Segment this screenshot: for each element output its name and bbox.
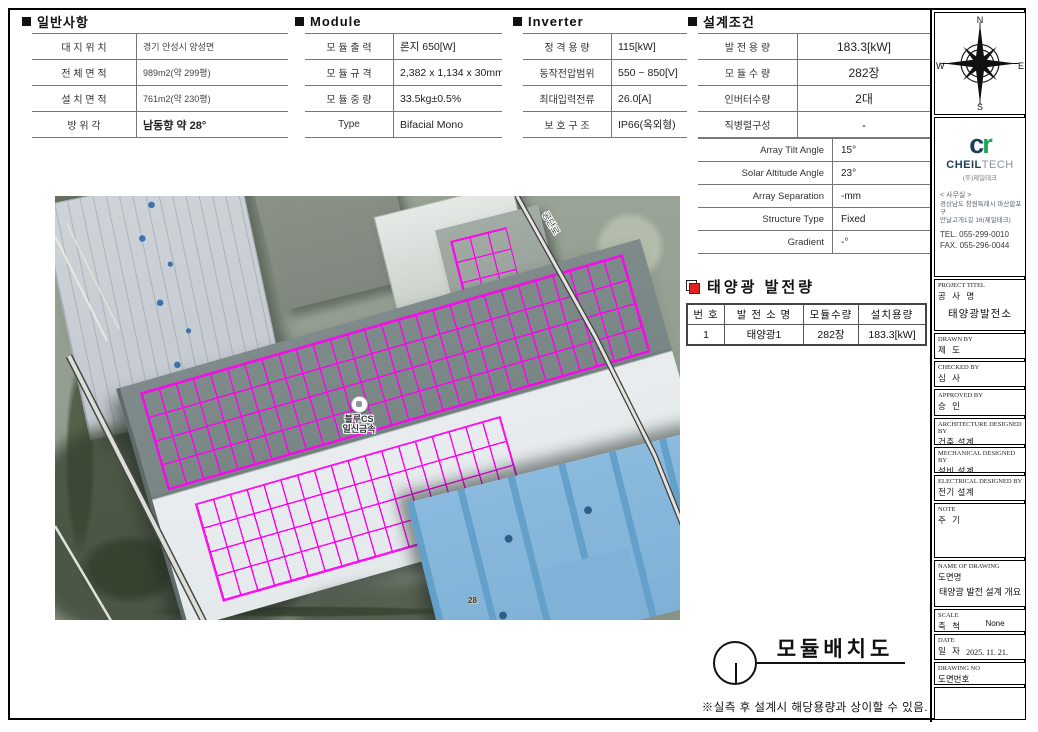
- table-row: Solar Altitude Angle23°: [698, 162, 930, 185]
- row-label: 인버터수량: [698, 86, 798, 112]
- titleblock-drawing-name: NAME OF DRAWING 도면명 태양광 발전 설계 개요: [934, 560, 1026, 607]
- block-value: 2025. 11. 21.: [949, 648, 1025, 657]
- row-value: 23°: [833, 162, 931, 185]
- map-place-label-line1: 블루CS: [313, 414, 405, 424]
- row-value: -mm: [833, 185, 931, 208]
- block-label-en: NOTE: [935, 504, 1025, 513]
- gen-cell-plant: 태양광1: [725, 325, 804, 346]
- row-value: -: [798, 112, 931, 138]
- row-value: 33.5kg±0.5%: [394, 86, 503, 112]
- block-label-en: MECHANICAL DESIGNED BY: [935, 448, 1025, 464]
- block-value: 태양광발전소: [935, 306, 1025, 321]
- row-label: Solar Altitude Angle: [698, 162, 833, 185]
- titleblock-drawing-no: DRAWING NO 도면번호: [934, 662, 1026, 685]
- section-module-title: Module: [310, 14, 362, 29]
- cheiltech-logo-icon: cr: [935, 132, 1025, 156]
- titleblock-date: DATE 일 자 2025. 11. 21.: [934, 634, 1026, 660]
- section-inverter-header: Inverter: [513, 12, 685, 30]
- square-bullet-icon: [688, 17, 697, 26]
- row-value: 경기 안성시 양성면: [137, 34, 289, 60]
- section-generation: 태양광 발전량 번 호 발 전 소 명 모듈수량 설치용량 1 태양광1 282…: [686, 276, 928, 346]
- row-value: Bifacial Mono: [394, 112, 503, 138]
- gen-cell-capacity: 183.3[kW]: [859, 325, 927, 346]
- module-table: 모 듈 출 력론지 650[W] 모 듈 규 격2,382 x 1,134 x …: [305, 33, 502, 138]
- gen-header-capacity: 설치용량: [859, 304, 927, 325]
- row-label: 보 호 구 조: [523, 112, 612, 138]
- company-name-bold: CHEIL: [946, 159, 982, 171]
- block-label-en: DATE: [935, 635, 1025, 644]
- block-value: None: [969, 619, 1021, 628]
- row-value: 2대: [798, 86, 931, 112]
- compass-rose-icon: [936, 15, 1024, 112]
- row-value: 26.0[A]: [612, 86, 688, 112]
- row-label: 최대입력전류: [523, 86, 612, 112]
- block-label-en: APPROVED BY: [935, 390, 1025, 399]
- row-label: Gradient: [698, 231, 833, 254]
- generation-title: 태양광 발전량: [707, 276, 815, 297]
- generation-table: 번 호 발 전 소 명 모듈수량 설치용량 1 태양광1 282장 183.3[…: [686, 303, 927, 346]
- titleblock-scale: SCALE 축 척 None: [934, 609, 1026, 632]
- office-label: < 사무실 >: [940, 190, 1025, 200]
- section-design-header: 설계조건: [688, 12, 928, 30]
- table-row: 인버터수량2대: [698, 86, 930, 112]
- block-label-kr: 공 사 명: [935, 289, 1025, 302]
- row-label: 대 지 위 치: [32, 34, 137, 60]
- row-value: 115[kW]: [612, 34, 688, 60]
- company-tel: TEL. 055-299-0010: [940, 230, 1025, 241]
- titleblock-architecture: ARCHITECTURE DESIGNED BY 건축 설계: [934, 418, 1026, 445]
- drawing-symbol-tick: [735, 663, 737, 684]
- titleblock-note: NOTE 주 기: [934, 503, 1026, 558]
- compass-west-label: W: [936, 61, 945, 71]
- row-value: 남동향 약 28°: [137, 112, 289, 138]
- block-label-en: ARCHITECTURE DESIGNED BY: [935, 419, 1025, 435]
- square-bullet-icon: [295, 17, 304, 26]
- table-row: 설 치 면 적761m2(약 230평): [32, 86, 288, 112]
- row-label: 설 치 면 적: [32, 86, 137, 112]
- section-inverter-title: Inverter: [528, 14, 584, 29]
- map-place-label-line2: 일신금속: [313, 424, 405, 434]
- table-row: 보 호 구 조IP66(옥외형): [523, 112, 687, 138]
- compass-north-label: N: [977, 15, 984, 25]
- row-value: 15°: [833, 139, 931, 162]
- inverter-table: 정 격 용 량115[kW] 동작전압범위550 ~ 850[V] 최대입력전류…: [523, 33, 687, 138]
- gen-cell-no: 1: [687, 325, 725, 346]
- row-label: 모 듈 수 량: [698, 60, 798, 86]
- block-label-en: DRAWING NO: [935, 663, 1025, 672]
- table-header-row: 번 호 발 전 소 명 모듈수량 설치용량: [687, 304, 926, 325]
- table-row: 방 위 각남동향 약 28°: [32, 112, 288, 138]
- section-general: 일반사항 대 지 위 치경기 안성시 양성면 전 체 면 적989m2(약 29…: [22, 12, 290, 138]
- section-design-title: 설계조건: [703, 12, 755, 31]
- table-row: 직병렬구성-: [698, 112, 930, 138]
- section-general-title: 일반사항: [37, 12, 89, 31]
- table-row: 최대입력전류26.0[A]: [523, 86, 687, 112]
- drawing-sheet: 일반사항 대 지 위 치경기 안성시 양성면 전 체 면 적989m2(약 29…: [0, 0, 1038, 732]
- block-label-kr: 도면번호: [935, 672, 1025, 685]
- logo-letter-c: c: [969, 129, 982, 159]
- block-label-kr: 제 도: [935, 343, 1025, 356]
- company-name-light: TECH: [982, 159, 1014, 171]
- satellite-map: 공단로 블루CS 일신금속 28: [55, 196, 680, 620]
- row-label: 전 체 면 적: [32, 60, 137, 86]
- titleblock-project: PROJECT TITEL 공 사 명 태양광발전소: [934, 279, 1026, 331]
- row-value: 761m2(약 230평): [137, 86, 289, 112]
- row-value: 론지 650[W]: [394, 34, 503, 60]
- drawing-title: 모듈배치도: [762, 633, 908, 663]
- section-design: 설계조건 발 전 용 량183.3[kW] 모 듈 수 량282장 인버터수량2…: [688, 12, 928, 254]
- titleblock-approved-by: APPROVED BY 승 인: [934, 389, 1026, 416]
- company-subtitle: (주)제일테크: [935, 172, 1025, 182]
- title-block-sidebar: N S E W: [930, 10, 1028, 722]
- table-row: Array Separation-mm: [698, 185, 930, 208]
- row-value: 282장: [798, 60, 931, 86]
- row-value: 989m2(약 299평): [137, 60, 289, 86]
- gen-header-no: 번 호: [687, 304, 725, 325]
- row-value: 183.3[kW]: [798, 34, 931, 60]
- table-row: 모 듈 중 량33.5kg±0.5%: [305, 86, 502, 112]
- table-row: 전 체 면 적989m2(약 299평): [32, 60, 288, 86]
- table-row: 모 듈 출 력론지 650[W]: [305, 34, 502, 60]
- design-table-angles: Array Tilt Angle15° Solar Altitude Angle…: [698, 138, 930, 254]
- row-label: Structure Type: [698, 208, 833, 231]
- map-place-label: 블루CS 일신금속: [313, 414, 405, 434]
- square-bullet-icon: [513, 17, 522, 26]
- block-label-kr: 주 기: [935, 513, 1025, 526]
- map-pin-icon: [351, 396, 368, 413]
- gen-cell-qty: 282장: [804, 325, 859, 346]
- section-module-header: Module: [295, 12, 500, 30]
- row-label: 동작전압범위: [523, 60, 612, 86]
- company-address-line2: 만날고개1길 16(제일테크): [940, 217, 1025, 225]
- titleblock-empty: [934, 687, 1026, 720]
- table-row: Gradient-°: [698, 231, 930, 254]
- section-general-header: 일반사항: [22, 12, 290, 30]
- row-value: 550 ~ 850[V]: [612, 60, 688, 86]
- compass-block: N S E W: [934, 12, 1026, 115]
- row-label: 방 위 각: [32, 112, 137, 138]
- block-label-kr: 승 인: [935, 399, 1025, 412]
- footer-note: ※실측 후 설계시 해당용량과 상이할 수 있음.: [630, 699, 928, 715]
- row-label: Type: [305, 112, 394, 138]
- block-label-en: PROJECT TITEL: [935, 280, 1025, 289]
- map-number-marker: 28: [468, 596, 477, 605]
- block-label-en: DRAWN BY: [935, 334, 1025, 343]
- block-label-kr: 심 사: [935, 371, 1025, 384]
- table-row: 동작전압범위550 ~ 850[V]: [523, 60, 687, 86]
- block-label-kr: 건축 설계: [935, 435, 1025, 445]
- table-row: 1 태양광1 282장 183.3[kW]: [687, 325, 926, 346]
- square-bullet-icon: [22, 17, 31, 26]
- block-label-en: SCALE: [935, 610, 1025, 619]
- block-label-kr: 전기 설계: [935, 485, 1025, 498]
- row-label: Array Tilt Angle: [698, 139, 833, 162]
- design-table-main: 발 전 용 량183.3[kW] 모 듈 수 량282장 인버터수량2대 직병렬…: [698, 33, 930, 138]
- block-label-en: NAME OF DRAWING: [935, 561, 1025, 570]
- layers-icon: [686, 280, 700, 294]
- compass-rose: N S E W: [936, 15, 1024, 112]
- titleblock-drawn-by: DRAWN BY 제 도: [934, 333, 1026, 359]
- row-label: 모 듈 규 격: [305, 60, 394, 86]
- block-label-en: CHECKED BY: [935, 362, 1025, 371]
- company-name: CHEILTECH: [935, 159, 1025, 171]
- row-label: Array Separation: [698, 185, 833, 208]
- generation-header: 태양광 발전량: [686, 276, 928, 297]
- table-row: 정 격 용 량115[kW]: [523, 34, 687, 60]
- table-row: 모 듈 수 량282장: [698, 60, 930, 86]
- block-label-kr: 설비 설계: [935, 464, 1025, 473]
- compass-east-label: E: [1018, 61, 1024, 71]
- section-inverter: Inverter 정 격 용 량115[kW] 동작전압범위550 ~ 850[…: [513, 12, 685, 138]
- section-module: Module 모 듈 출 력론지 650[W] 모 듈 규 격2,382 x 1…: [295, 12, 500, 138]
- block-label-en: ELECTRICAL DESIGNED BY: [935, 476, 1025, 485]
- table-row: 발 전 용 량183.3[kW]: [698, 34, 930, 60]
- row-label: 정 격 용 량: [523, 34, 612, 60]
- titleblock-electrical: ELECTRICAL DESIGNED BY 전기 설계: [934, 475, 1026, 501]
- titleblock-mechanical: MECHANICAL DESIGNED BY 설비 설계: [934, 447, 1026, 473]
- gen-header-qty: 모듈수량: [804, 304, 859, 325]
- gen-header-plant: 발 전 소 명: [725, 304, 804, 325]
- table-row: 모 듈 규 격2,382 x 1,134 x 30mm: [305, 60, 502, 86]
- titleblock-checked-by: CHECKED BY 심 사: [934, 361, 1026, 387]
- row-value: -°: [833, 231, 931, 254]
- row-value: Fixed: [833, 208, 931, 231]
- logo-letter-r: r: [982, 129, 991, 159]
- row-label: 발 전 용 량: [698, 34, 798, 60]
- table-row: Structure TypeFixed: [698, 208, 930, 231]
- row-label: 모 듈 출 력: [305, 34, 394, 60]
- company-fax: FAX. 055-296-0044: [940, 241, 1025, 252]
- row-label: 모 듈 중 량: [305, 86, 394, 112]
- block-label-kr: 도면명: [935, 570, 1025, 583]
- general-table: 대 지 위 치경기 안성시 양성면 전 체 면 적989m2(약 299평) 설…: [32, 33, 288, 138]
- row-label: 직병렬구성: [698, 112, 798, 138]
- compass-south-label: S: [977, 102, 983, 112]
- row-value: IP66(옥외형): [612, 112, 688, 138]
- company-block: cr CHEILTECH (주)제일테크 < 사무실 > 경상남도 창원특례시 …: [934, 117, 1026, 277]
- table-row: 대 지 위 치경기 안성시 양성면: [32, 34, 288, 60]
- table-row: TypeBifacial Mono: [305, 112, 502, 138]
- company-address-line1: 경상남도 창원특례시 마산합포구: [940, 201, 1025, 217]
- row-value: 2,382 x 1,134 x 30mm: [394, 60, 503, 86]
- table-row: Array Tilt Angle15°: [698, 139, 930, 162]
- block-value: 태양광 발전 설계 개요: [935, 585, 1025, 598]
